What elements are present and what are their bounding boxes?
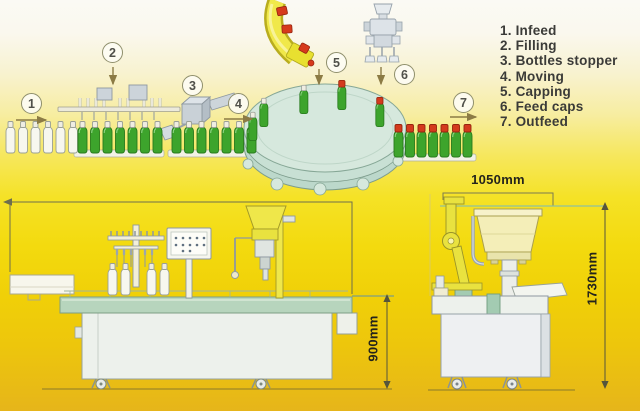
legend-item: 5. Capping [500, 84, 618, 99]
step-marker-5: 5 [326, 52, 347, 73]
step-marker-6: 6 [394, 64, 415, 85]
dimension-1730-lines [601, 202, 608, 389]
legend-item: 1. Infeed [500, 23, 618, 38]
step-marker-3: 3 [182, 75, 203, 96]
dimension-label-left-height: 900mm [366, 307, 381, 371]
capping-head-unit [232, 206, 296, 298]
filling-needle-unit [108, 225, 169, 295]
control-panel [167, 228, 211, 298]
dimension-label-right-height: 1730mm [585, 245, 600, 313]
dimension-label-width: 1050mm [443, 172, 553, 187]
caster-wheel [448, 377, 466, 389]
bottling-line-diagram-page: 1 2 3 4 5 6 7 1. Infeed 2. Filling 3. Bo… [0, 0, 640, 411]
process-legend: 1. Infeed 2. Filling 3. Bottles stopper … [500, 23, 618, 129]
step-marker-2: 2 [102, 42, 123, 63]
filling-station [58, 85, 180, 120]
vibratory-bowl-feeder [473, 209, 542, 298]
filling-bottles [78, 122, 162, 154]
cap-feeder-unit [364, 4, 402, 62]
step-marker-1: 1 [21, 93, 42, 114]
legend-item: 2. Filling [500, 38, 618, 53]
right-machine-drawing [428, 193, 609, 390]
cap-on-chute [276, 6, 287, 16]
capper-workbench [432, 276, 567, 314]
infeed-bottles [6, 122, 78, 154]
legend-item: 6. Feed caps [500, 99, 618, 114]
legend-item: 7. Outfeed [500, 114, 618, 129]
legend-item: 3. Bottles stopper [500, 53, 618, 68]
left-machine-drawing [3, 198, 394, 389]
caster-wheel [252, 379, 270, 389]
step-marker-7: 7 [453, 92, 474, 113]
legend-item: 4. Moving [500, 69, 618, 84]
step-marker-4: 4 [228, 93, 249, 114]
caster-wheel [92, 379, 110, 389]
cap-chute [270, 1, 316, 68]
moving-bottles [172, 122, 256, 154]
caster-wheel [503, 377, 521, 389]
capper-cabinet [428, 314, 575, 390]
cap-on-chute [282, 25, 293, 34]
